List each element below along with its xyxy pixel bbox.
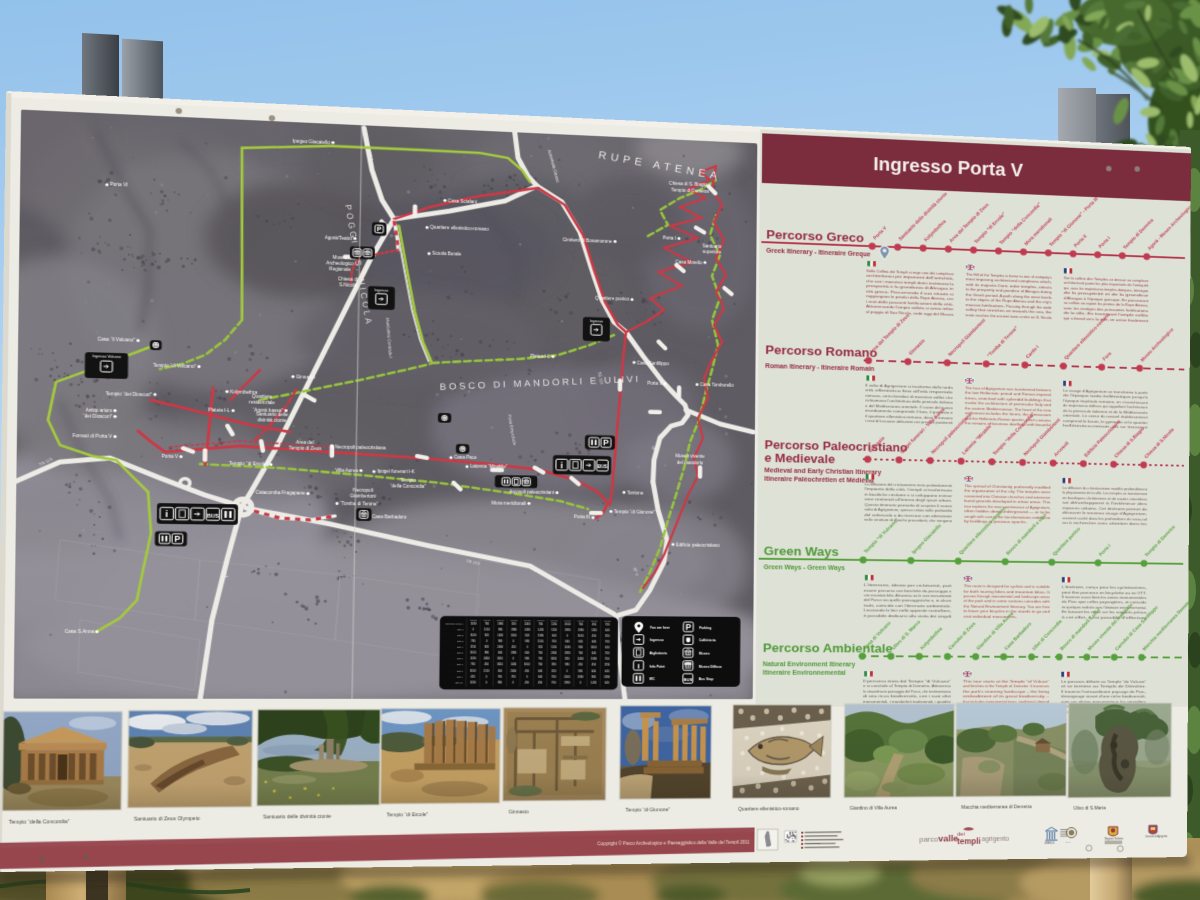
svg-text:640: 640 [498, 651, 503, 655]
svg-text:1980: 1980 [511, 651, 517, 655]
svg-text:Antiquarium: Antiquarium [85, 408, 112, 414]
svg-text:Casa S.Anna: Casa S.Anna [65, 629, 95, 635]
svg-text:et se termine au Temple de Dém: et se termine au Temple de Déméter. [1061, 684, 1146, 689]
svg-text:1980: 1980 [538, 634, 544, 638]
svg-text:820: 820 [484, 645, 489, 649]
svg-text:1980: 1980 [497, 622, 503, 626]
svg-text:760: 760 [539, 622, 544, 626]
svg-text:760: 760 [538, 657, 543, 661]
svg-text:760: 760 [471, 663, 476, 667]
svg-text:1980: 1980 [564, 681, 570, 685]
svg-text:Fornaci di Porta V: Fornaci di Porta V [72, 433, 113, 440]
svg-text:3010: 3010 [591, 646, 597, 650]
svg-text:Santuario delle divinità ctoni: Santuario delle divinità ctonie [263, 814, 331, 820]
svg-text:“Tomba di Terone”: “Tomba di Terone” [340, 501, 379, 507]
svg-text:You are here: You are here [650, 626, 670, 630]
svg-text:i: i [637, 661, 639, 670]
svg-text:450: 450 [511, 645, 516, 649]
svg-text:i: i [560, 461, 563, 471]
svg-text:Tempio “della Concordia”: Tempio “della Concordia” [9, 819, 70, 825]
svg-text:640: 640 [525, 651, 530, 655]
svg-text:Tempio di Zeus: Tempio di Zeus [289, 446, 322, 452]
svg-text:3010: 3010 [524, 663, 530, 667]
svg-text:Edificio paleocristiano: Edificio paleocristiano [676, 542, 720, 548]
svg-text:Comune di Agrigento: Comune di Agrigento [1145, 835, 1168, 839]
svg-text:760: 760 [579, 622, 584, 626]
svg-text:Casa “il Vulcano”: Casa “il Vulcano” [98, 337, 136, 344]
svg-text:1980: 1980 [565, 628, 571, 632]
svg-text:Bus Stop: Bus Stop [699, 678, 714, 682]
svg-text:e si conclude al Tempio di Dem: e si conclude al Tempio di Demetra. Attr… [863, 684, 951, 689]
svg-text:980: 980 [498, 639, 503, 643]
svg-text:Ingresso Porta V: Ingresso Porta V [445, 622, 464, 625]
svg-text:1150: 1150 [551, 646, 557, 650]
svg-text:Torrione: Torrione [627, 490, 644, 496]
svg-text:980: 980 [565, 663, 570, 667]
svg-text:640: 640 [605, 669, 610, 673]
svg-text:Villa Aurea: Villa Aurea [335, 468, 358, 474]
svg-text:Sito 3: Sito 3 [457, 640, 464, 643]
svg-text:450: 450 [525, 681, 530, 685]
svg-text:3010: 3010 [511, 634, 517, 638]
svg-text:640: 640 [565, 640, 570, 644]
svg-text:Ingresso: Ingresso [497, 620, 505, 622]
svg-text:3010: 3010 [578, 634, 584, 638]
svg-text:1430: 1430 [470, 657, 476, 661]
svg-text:BUS: BUS [207, 513, 219, 519]
svg-text:Sito 4: Sito 4 [457, 646, 464, 649]
svg-text:2400: 2400 [484, 657, 490, 661]
svg-text:Platea I-L: Platea I-L [530, 354, 550, 360]
svg-text:820: 820 [538, 646, 543, 650]
svg-text:Casa Morello: Casa Morello [675, 259, 702, 265]
svg-text:Mura meridionali: Mura meridionali [492, 501, 526, 507]
svg-text:2400: 2400 [524, 622, 530, 626]
svg-text:and finishes at the Temple of: and finishes at the Temple of Demeter. I… [963, 684, 1050, 689]
svg-text:“della Concordia”: “della Concordia” [390, 484, 426, 490]
svg-text:450: 450 [578, 663, 583, 667]
svg-text:Sito 2: Sito 2 [457, 634, 464, 637]
svg-text:Ingresso: Ingresso [650, 639, 665, 643]
svg-text:820: 820 [551, 669, 556, 673]
svg-text:Biglietteria: Biglietteria [650, 652, 667, 656]
svg-text:450: 450 [592, 663, 597, 667]
svg-text:2400: 2400 [497, 645, 503, 649]
svg-text:640: 640 [605, 628, 610, 632]
svg-text:superiore: superiore [703, 249, 722, 255]
svg-text:980: 980 [578, 669, 583, 673]
svg-text:760: 760 [551, 681, 556, 685]
svg-text:1150: 1150 [484, 628, 490, 632]
svg-text:BUS: BUS [684, 677, 693, 682]
svg-text:3010: 3010 [470, 651, 476, 655]
svg-text:Quartiere ellenistico-romano: Quartiere ellenistico-romano [738, 807, 799, 813]
svg-text:640: 640 [592, 669, 597, 673]
svg-text:Museo vivente: Museo vivente [675, 454, 704, 460]
svg-text:divinità ctonie: divinità ctonie [257, 418, 287, 424]
svg-text:2400: 2400 [510, 669, 516, 673]
svg-text:del mandorlo: del mandorlo [677, 460, 703, 466]
svg-text:Ingresso: Ingresso [564, 621, 572, 623]
svg-text:Museo: Museo [333, 255, 348, 261]
svg-text:450: 450 [484, 663, 489, 667]
svg-text:embodiment of its great biodiv: embodiment of its great biodiversity – [963, 694, 1050, 698]
svg-text:P: P [174, 535, 180, 544]
svg-text:450: 450 [471, 675, 476, 679]
svg-text:450: 450 [538, 681, 543, 685]
svg-text:Tempio “dei Dioscuri”: Tempio “dei Dioscuri” [106, 391, 153, 398]
svg-text:This tour starts at the Temple: This tour starts at the Temple “of Vulca… [963, 679, 1050, 684]
svg-text:Ingresso: Ingresso [577, 621, 585, 623]
svg-text:Casa Pace: Casa Pace [454, 455, 477, 461]
svg-text:640: 640 [578, 640, 583, 644]
svg-text:980: 980 [578, 646, 583, 650]
svg-text:Tempio: Tempio [400, 478, 416, 484]
svg-text:Sito 1: Sito 1 [457, 628, 464, 631]
svg-text:residenziale: residenziale [249, 400, 275, 406]
svg-text:1150: 1150 [484, 669, 490, 673]
svg-text:Scuola Burale: Scuola Burale [432, 251, 462, 258]
svg-text:760: 760 [485, 622, 490, 626]
svg-text:820: 820 [485, 634, 490, 638]
svg-text:di una ricca biodiversità, con: di una ricca biodiversità, con i suoi ul… [863, 694, 951, 699]
svg-text:Natural Environment Itinerary: Natural Environment Itinerary [763, 661, 855, 668]
svg-text:760: 760 [605, 652, 610, 656]
svg-text:1430: 1430 [497, 634, 503, 638]
svg-text:450: 450 [592, 634, 597, 638]
svg-text:760: 760 [538, 651, 543, 655]
svg-text:valle: valle [938, 834, 958, 844]
svg-text:S.Nicola: S.Nicola [339, 283, 357, 289]
svg-text:1430: 1430 [470, 622, 476, 626]
svg-text:980: 980 [498, 681, 503, 685]
svg-text:Sito 10: Sito 10 [455, 681, 463, 684]
svg-text:820: 820 [565, 657, 570, 661]
svg-text:Santuario di Zeus Olympeio: Santuario di Zeus Olympeio [134, 816, 200, 822]
svg-text:Latomia “Mirabile”: Latomia “Mirabile” [470, 464, 508, 470]
svg-text:3010: 3010 [551, 657, 557, 661]
svg-text:Arcosoli paleocristiani: Arcosoli paleocristiani [509, 490, 554, 496]
svg-text:Le parcours débute au Temple “: Le parcours débute au Temple “de Vulcain… [1061, 679, 1146, 684]
svg-text:Tempio “di Vulcano”: Tempio “di Vulcano” [153, 363, 197, 370]
svg-text:témoignage vivant d'une riche: témoignage vivant d'une riche biodiversi… [1061, 694, 1146, 698]
svg-text:980: 980 [591, 675, 596, 679]
svg-text:1150: 1150 [470, 645, 476, 649]
svg-text:Chiesa di: Chiesa di [338, 277, 358, 283]
svg-text:3010: 3010 [565, 622, 571, 626]
svg-text:450: 450 [592, 622, 597, 626]
svg-text:lo straordinario paesaggio del: lo straordinario paesaggio del Parco, ch… [863, 689, 951, 694]
svg-text:Casa Tomburello: Casa Tomburello [700, 382, 734, 388]
svg-text:Ingresso: Ingresso [375, 288, 389, 292]
svg-text:980: 980 [525, 640, 530, 644]
svg-text:980: 980 [525, 657, 530, 661]
svg-text:e Medievale: e Medievale [764, 451, 835, 466]
svg-text:1980: 1980 [578, 628, 584, 632]
svg-text:Ingresso: Ingresso [524, 621, 532, 623]
svg-text:Porta II: Porta II [647, 381, 662, 387]
svg-text:P: P [686, 623, 692, 632]
svg-text:Casa Sciafani: Casa Sciafani [448, 198, 477, 205]
svg-text:Casa Barbadoro: Casa Barbadoro [372, 514, 407, 520]
svg-text:450: 450 [525, 669, 530, 673]
svg-text:980: 980 [498, 628, 503, 632]
svg-text:Green Ways: Green Ways [764, 543, 839, 558]
svg-text:P: P [377, 226, 382, 234]
svg-text:3010: 3010 [497, 657, 503, 661]
svg-text:Regione Siciliana: Regione Siciliana [1105, 837, 1124, 841]
svg-text:parco: parco [919, 834, 938, 843]
svg-text:760: 760 [538, 663, 543, 667]
svg-text:Quartiere: Quartiere [252, 394, 273, 400]
svg-text:Ulivo di S.Maria: Ulivo di S.Maria [1073, 806, 1105, 812]
svg-text:Necropoli paleocristiana: Necropoli paleocristiana [335, 444, 386, 451]
svg-text:640: 640 [538, 669, 543, 673]
svg-text:Porta III: Porta III [574, 515, 590, 521]
svg-text:1430: 1430 [511, 663, 517, 667]
svg-text:Catacomba Fragapane: Catacomba Fragapane [256, 490, 306, 496]
svg-text:640: 640 [552, 634, 557, 638]
svg-text:1430: 1430 [591, 681, 597, 685]
svg-text:760: 760 [498, 675, 503, 679]
svg-text:1980: 1980 [577, 675, 583, 679]
svg-text:820: 820 [605, 634, 610, 638]
svg-text:Agorà/Teatro: Agorà/Teatro [325, 235, 353, 242]
svg-text:Tempio “di Ercole”: Tempio “di Ercole” [386, 812, 428, 818]
svg-text:Area del: Area del [296, 440, 314, 446]
svg-text:Ingresso: Ingresso [591, 621, 599, 623]
svg-text:è possibile dedicarsi alla vis: è possibile dedicarsi alla visita dei si… [864, 613, 952, 618]
svg-text:2400: 2400 [551, 651, 557, 655]
svg-text:Green Ways - Green Ways: Green Ways - Green Ways [764, 564, 845, 572]
svg-text:Ingresso: Ingresso [590, 319, 603, 323]
svg-text:“dei Dioscuri”: “dei Dioscuri” [83, 414, 113, 420]
svg-text:Giardino di Villa Aurea: Giardino di Villa Aurea [850, 806, 897, 812]
svg-text:agrigento: agrigento [982, 835, 1009, 843]
svg-text:760: 760 [511, 675, 516, 679]
svg-text:P: P [603, 439, 609, 448]
svg-text:i: i [165, 510, 168, 520]
svg-text:980: 980 [552, 663, 557, 667]
svg-text:Itineraire Environnemental: Itineraire Environnemental [763, 669, 846, 676]
svg-text:760: 760 [551, 675, 556, 679]
svg-text:Sito 8: Sito 8 [457, 670, 464, 673]
svg-text:Giambertoni: Giambertoni [350, 494, 376, 500]
svg-text:Tempio “di Giunone”: Tempio “di Giunone” [625, 808, 670, 814]
svg-text:Tempio “di Ercole”: Tempio “di Ercole” [229, 462, 268, 468]
svg-text:Parking: Parking [699, 626, 711, 630]
svg-text:Ingresso: Ingresso [551, 621, 559, 623]
svg-text:2400: 2400 [564, 675, 570, 679]
svg-text:the park's stunning landscape: the park's stunning landscape – the livi… [963, 689, 1050, 694]
svg-text:Ingresso: Ingresso [604, 621, 612, 623]
svg-text:450: 450 [498, 669, 503, 673]
svg-text:Tempio “di Giunone”: Tempio “di Giunone” [614, 509, 655, 515]
svg-text:1430: 1430 [564, 646, 570, 650]
svg-text:Il percorso inizia dal Tempio: Il percorso inizia dal Tempio “di Vulcan… [863, 679, 951, 684]
svg-text:1150: 1150 [604, 663, 610, 667]
svg-text:templi: templi [957, 837, 981, 846]
svg-text:Macchia mediterranea di Demetr: Macchia mediterranea di Demetra [961, 805, 1032, 811]
svg-text:BUS: BUS [597, 465, 608, 471]
svg-text:3010: 3010 [497, 663, 503, 667]
svg-text:980: 980 [484, 651, 489, 655]
svg-text:820: 820 [512, 622, 517, 626]
svg-text:Archeologico: Archeologico [326, 261, 354, 268]
svg-text:760: 760 [471, 639, 476, 643]
svg-text:à cet effet, il est possible d: à cet effet, il est possible d'effectuer [1062, 615, 1147, 620]
svg-text:Casa Sanfilippo: Casa Sanfilippo [637, 360, 669, 366]
svg-text:Ingresso Vulcano: Ingresso Vulcano [92, 354, 120, 359]
svg-text:1980: 1980 [591, 657, 597, 661]
svg-text:Ingresso: Ingresso [483, 620, 491, 622]
svg-text:760: 760 [605, 640, 610, 644]
svg-text:Ingresso: Ingresso [470, 620, 478, 622]
svg-text:820: 820 [525, 634, 530, 638]
svg-text:Sito 5: Sito 5 [457, 652, 464, 655]
svg-text:1150: 1150 [591, 628, 597, 632]
svg-text:640: 640 [592, 640, 597, 644]
svg-text:Museo Diffuso: Museo Diffuso [699, 665, 723, 669]
svg-text:760: 760 [605, 658, 610, 662]
svg-text:Sito 7: Sito 7 [457, 664, 464, 667]
svg-text:1430: 1430 [524, 628, 530, 632]
svg-text:760: 760 [552, 640, 557, 644]
svg-text:Ingresso: Ingresso [537, 621, 545, 623]
svg-text:Ginnasio: Ginnasio [509, 810, 529, 816]
svg-text:Sito 9: Sito 9 [457, 676, 464, 679]
svg-text:monumentali, i mandorleti trad: monumentali, i mandorleti tradizionali, … [863, 699, 951, 703]
svg-text:UNESCO: UNESCO [1044, 842, 1054, 846]
svg-text:Porta I: Porta I [663, 236, 676, 242]
svg-text:760: 760 [578, 652, 583, 656]
svg-text:Ipogei funerari I-K: Ipogei funerari I-K [377, 469, 415, 475]
svg-text:640: 640 [592, 652, 597, 656]
svg-text:“Agorà bassa”: “Agorà bassa” [253, 408, 284, 414]
svg-text:1150: 1150 [538, 640, 544, 644]
svg-text:1430: 1430 [538, 628, 544, 632]
svg-text:F.A.I.: F.A.I. [1066, 841, 1071, 844]
svg-text:2400: 2400 [578, 657, 584, 661]
svg-text:Porta V: Porta V [162, 454, 179, 460]
svg-text:1150: 1150 [551, 628, 557, 632]
svg-text:1430: 1430 [470, 681, 476, 685]
svg-text:1980: 1980 [564, 652, 570, 656]
svg-text:Regionale: Regionale [329, 267, 351, 273]
svg-text:3010: 3010 [470, 633, 476, 637]
svg-text:Quartiere punico: Quartiere punico [595, 296, 629, 303]
svg-text:640: 640 [605, 646, 610, 650]
svg-text:760: 760 [605, 623, 610, 627]
svg-text:640: 640 [538, 675, 543, 679]
svg-text:1980: 1980 [604, 675, 610, 679]
svg-text:Caffetteria: Caffetteria [699, 639, 716, 643]
svg-text:Info Point: Info Point [649, 665, 665, 669]
svg-text:1150: 1150 [551, 622, 557, 626]
svg-text:Plateia I-L: Plateia I-L [208, 408, 230, 414]
svg-text:Porta VI: Porta VI [110, 182, 128, 188]
svg-text:WC: WC [649, 678, 655, 682]
svg-text:Ginnasio: Ginnasio [296, 374, 315, 380]
svg-text:Il traverse l'extraordinaire p: Il traverse l'extraordinaire paysage du … [1061, 689, 1146, 693]
svg-text:Museo: Museo [699, 652, 710, 656]
svg-text:3010: 3010 [470, 669, 476, 673]
svg-text:Sito 6: Sito 6 [457, 658, 464, 661]
svg-text:1980: 1980 [511, 628, 517, 632]
svg-text:Ingresso: Ingresso [510, 620, 518, 622]
svg-text:640: 640 [605, 681, 610, 685]
